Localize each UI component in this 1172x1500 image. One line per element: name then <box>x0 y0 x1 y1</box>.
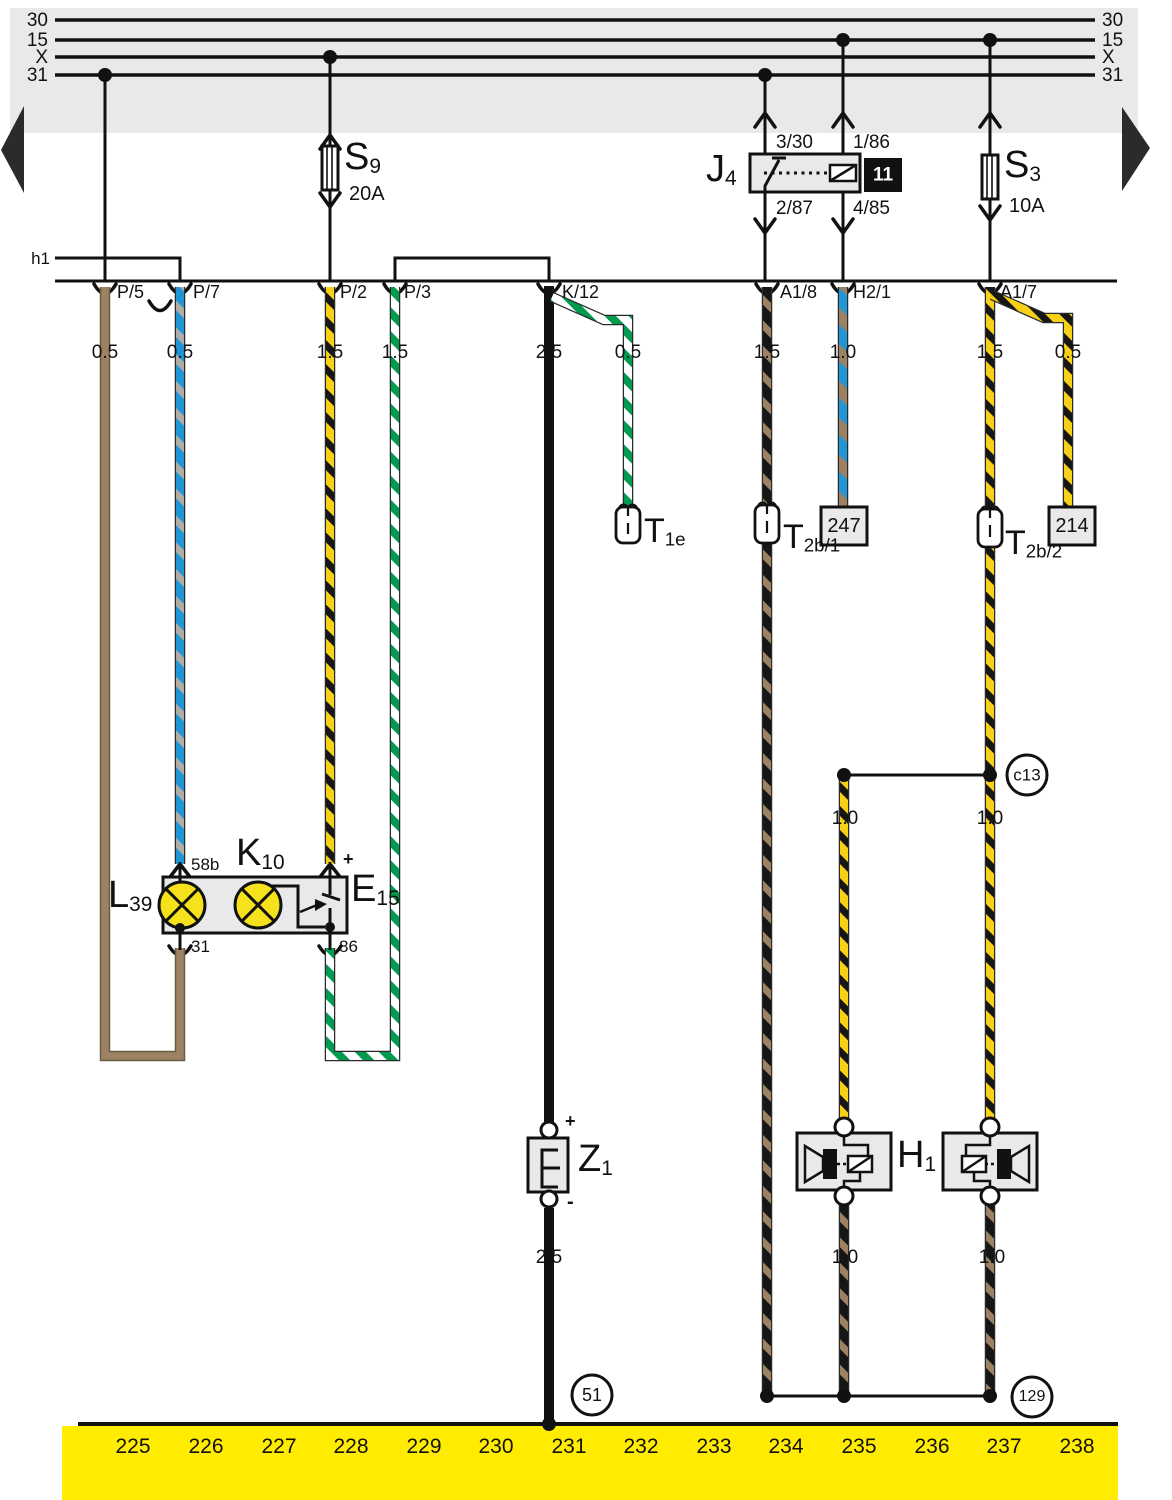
connector-t2b1-symbol <box>755 503 779 544</box>
horn-h1-label: H1 <box>897 1136 936 1176</box>
h1-line-label: h1 <box>31 250 50 267</box>
fuse-s9-label: S9 <box>344 138 381 178</box>
gauge-label: 0.5 <box>1055 343 1081 362</box>
wire-yellow-black-a17-214 <box>992 295 1068 540</box>
p3-k12-bridge <box>395 258 549 281</box>
connection-lines <box>55 40 1117 1396</box>
track-number: 225 <box>115 1436 150 1457</box>
connector-t1e-label: T1e <box>644 514 686 549</box>
k10-pin-58b: 58b <box>191 856 219 873</box>
track-number: 234 <box>768 1436 803 1457</box>
terminal-label-a17: A1/7 <box>1000 283 1037 301</box>
junction-dot <box>175 923 185 933</box>
track-number: 233 <box>696 1436 731 1457</box>
gauge-label: 1.5 <box>754 343 780 362</box>
fuse-s3-label: S3 <box>1004 146 1041 186</box>
fuse-s3-symbol <box>982 155 998 199</box>
z1-minus-label: - <box>567 1192 574 1212</box>
gauge-label: 1.0 <box>832 809 858 828</box>
k10-label: K10 <box>236 834 285 874</box>
fuse-s3-rating: 10A <box>1009 196 1045 216</box>
ref-c13-label: c13 <box>1013 767 1040 784</box>
junction-dot <box>98 68 112 82</box>
gauge-label: 1.0 <box>832 1248 858 1267</box>
z1-label: Z1 <box>578 1140 613 1180</box>
junction-dot <box>758 68 772 82</box>
track-number: 229 <box>406 1436 441 1457</box>
bus-label-31-left: 31 <box>27 66 48 85</box>
relay-pin-4-85: 4/85 <box>853 199 890 218</box>
ref-129-label: 129 <box>1019 1389 1046 1405</box>
track-number: 228 <box>333 1436 368 1457</box>
gauge-label: 1.0 <box>977 809 1003 828</box>
h1-line <box>55 258 180 281</box>
wiring-diagram-canvas <box>0 0 1172 1500</box>
bus-label-31-right: 31 <box>1102 66 1123 85</box>
junction-dot <box>836 33 850 47</box>
gauge-label: 1.5 <box>977 343 1003 362</box>
gauge-label: 2.5 <box>536 343 562 362</box>
relay-j4-label: J4 <box>706 150 737 190</box>
bus-label-30-left: 30 <box>27 11 48 30</box>
terminal-label-p3: P/3 <box>404 283 431 301</box>
bus-band-background <box>10 8 1138 133</box>
terminal-label-a18: A1/8 <box>780 283 817 301</box>
wire-outline <box>552 297 628 540</box>
gauge-label: 1.5 <box>382 343 408 362</box>
track-number: 232 <box>623 1436 658 1457</box>
gauge-label: 0.5 <box>615 343 641 362</box>
connector-t1e-symbol <box>616 505 640 544</box>
gauge-label: 1.0 <box>979 1248 1005 1267</box>
junction-dot <box>542 1417 556 1431</box>
junction-dot <box>983 768 997 782</box>
wire-outline <box>992 295 1068 540</box>
track-number: 227 <box>261 1436 296 1457</box>
junction-dot <box>323 50 337 64</box>
connector-t2b2-symbol <box>978 507 1002 548</box>
junction-dot <box>983 1389 997 1403</box>
junction-dot <box>983 33 997 47</box>
terminal-label-p7: P/7 <box>193 283 220 301</box>
e15-label: E15 <box>351 870 400 910</box>
speaker-icon <box>997 1149 1011 1179</box>
terminal-label-k12: K/12 <box>562 283 599 301</box>
junction-dot <box>760 1389 774 1403</box>
terminal-label-p2: P/2 <box>340 283 367 301</box>
z1-plus-label: + <box>565 1112 576 1130</box>
track-number: 238 <box>1059 1436 1094 1457</box>
bus-band <box>1 8 1150 193</box>
speaker-icon <box>823 1149 837 1179</box>
wire-green-white-k12-t1e <box>552 297 628 540</box>
track-number: 235 <box>841 1436 876 1457</box>
track-number: 237 <box>986 1436 1021 1457</box>
track-number: 231 <box>551 1436 586 1457</box>
gauge-label: 2.5 <box>536 1248 562 1267</box>
ground-box-214-label: 214 <box>1055 516 1088 536</box>
fuse-s9-rating: 20A <box>349 184 385 204</box>
junction-dot <box>837 768 851 782</box>
horn-right-symbol <box>943 1118 1037 1205</box>
relay-pin-2-87: 2/87 <box>776 199 813 218</box>
track-number: 230 <box>478 1436 513 1457</box>
ref-51-label: 51 <box>582 1386 602 1404</box>
ground-box-247-label: 247 <box>827 516 860 536</box>
connector-t2b2-label: T2b/2 <box>1005 526 1062 561</box>
track-number: 236 <box>914 1436 949 1457</box>
junction-dot <box>325 922 335 932</box>
gauge-label: 0.5 <box>167 343 193 362</box>
k10-pin-86: 86 <box>339 938 358 955</box>
track-number: 226 <box>188 1436 223 1457</box>
horn-left-symbol <box>797 1118 891 1205</box>
bus-label-30-right: 30 <box>1102 11 1123 30</box>
gauge-label: 0.5 <box>92 343 118 362</box>
wire-outline <box>105 287 180 1056</box>
gauge-label: 1.0 <box>830 343 856 362</box>
wire-brown-p5-31 <box>105 287 180 1056</box>
relay-pin-3-30: 3/30 <box>776 133 813 152</box>
z1-element-symbol <box>528 1122 568 1207</box>
relay-pin-1-86: 1/86 <box>853 133 890 152</box>
k10-pin-plus: + <box>343 850 354 868</box>
relay-code-label: 11 <box>873 166 893 185</box>
terminal-label-p5: P/5 <box>117 283 144 301</box>
junction-dot <box>837 1389 851 1403</box>
wiring-diagram-page: 30 15 X 31 30 15 X 31 h1 S9 20A S3 10A J… <box>0 0 1172 1500</box>
terminal-hook-icon <box>149 301 171 311</box>
k10-pin-31: 31 <box>191 938 210 955</box>
fuse-s9-symbol <box>322 146 338 190</box>
terminal-label-h21: H2/1 <box>853 283 891 301</box>
gauge-label: 1.5 <box>317 343 343 362</box>
l39-label: L39 <box>108 876 152 916</box>
